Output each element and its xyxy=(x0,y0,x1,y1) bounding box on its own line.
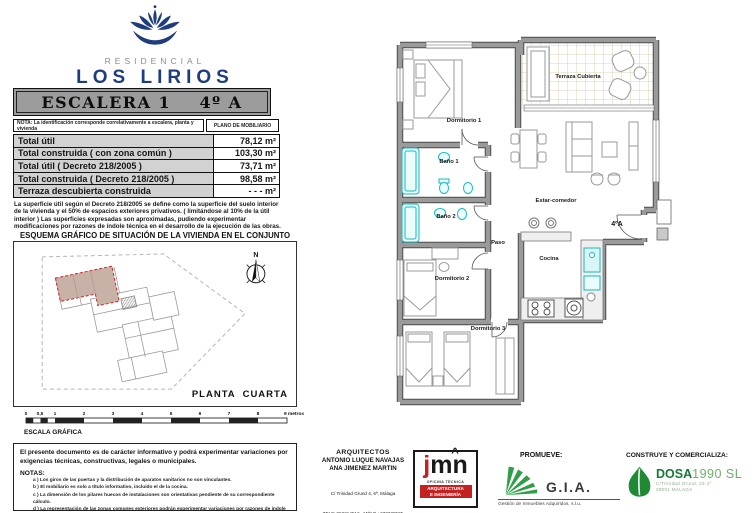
bedroom3-furniture-icon xyxy=(406,332,514,394)
table-row: Total útil ( Decreto 218/2005 ) 73,71 m² xyxy=(14,160,280,173)
room-label-estar: Estar-comedor xyxy=(536,198,578,204)
brochure-page: RESIDENCIAL LOS LIRIOS ESCALERA 1 4º A N… xyxy=(0,0,756,513)
scale-tick: 8 xyxy=(257,411,260,417)
room-label-dormitorio2: Dormitorio 2 xyxy=(435,276,469,282)
building-footprint xyxy=(55,255,190,391)
scale-tick: 1 xyxy=(54,411,57,417)
room-label-terraza: Terraza Cubierta xyxy=(555,74,601,80)
table-row: Total construida ( con zona común ) 103,… xyxy=(14,147,280,160)
area-label: Total construida ( con zona común ) xyxy=(14,147,214,160)
nota-item: b ) El mobiliario es solo a título infor… xyxy=(33,484,290,491)
dosa-tulip-icon xyxy=(626,463,653,499)
area-value: 103,30 m² xyxy=(214,147,280,160)
gia-subtitle: Gestión de Inmuebles Adquiridos, s.l.u. xyxy=(498,502,620,507)
dosa-wordmark: DOSA1990 SL xyxy=(656,468,742,481)
site-plan-box: N PLANTA CUARTA xyxy=(13,241,297,407)
room-label-cocina: Cocina xyxy=(539,256,559,262)
bedroom2-furniture-icon xyxy=(404,248,458,316)
unit-door-label: 4ºA xyxy=(611,221,623,228)
gia-fan-icon xyxy=(498,461,542,497)
table-row: Total útil 78,12 m² xyxy=(14,135,280,148)
scale-tick: 0,5 xyxy=(37,411,44,417)
area-value: 98,58 m² xyxy=(214,172,280,185)
room-label-bano2: Baño 2 xyxy=(436,214,455,220)
area-label: Total útil ( Decreto 218/2005 ) xyxy=(14,160,214,173)
schema-title: ESQUEMA GRÁFICO DE SITUACIÓN DE LA VIVIE… xyxy=(13,231,297,240)
notas-title: NOTAS: xyxy=(20,470,290,477)
plano-mobiliario-label: PLANO DE MOBILIARIO xyxy=(206,119,279,132)
bathroom2-fixtures-icon xyxy=(402,204,467,242)
scale-tick: 7 xyxy=(228,411,231,417)
area-label: Total construida ( Decreto 218/2005 ) xyxy=(14,172,214,185)
jmn-tagline: OFICINA TÉCNICA xyxy=(427,480,465,484)
kitchen-icon xyxy=(521,218,603,320)
architect-name: ANTONIO LUQUE NAVAJAS xyxy=(315,457,411,464)
architects-address: C/ Trinidad Grund 4, 6ª, Málaga xyxy=(315,491,411,498)
jmn-wordmark: jmn ^ xyxy=(423,453,467,478)
scale-tick: 3 xyxy=(112,411,115,417)
promueve-block: PROMUEVE: G.I.A. Gestión de Inmuebles Ad… xyxy=(498,452,620,507)
construye-title: CONSTRUYE Y COMERCIALIZA: xyxy=(626,452,753,459)
architects-title: ARQUITECTOS xyxy=(315,449,411,456)
notes-box: El presente documento es de carácter inf… xyxy=(13,443,297,511)
architect-name: ANA JIMENEZ MARTIN xyxy=(315,465,411,472)
brand-residencial: RESIDENCIAL xyxy=(13,56,297,66)
unit-title: ESCALERA 1 4º A xyxy=(41,93,242,112)
brand-name: LOS LIRIOS xyxy=(13,67,297,89)
area-label: Total útil xyxy=(14,135,214,148)
area-value: 73,71 m² xyxy=(214,160,280,173)
jmn-circumflex: ^ xyxy=(451,446,459,459)
floor-plan: Dormitorio 1 Baño 1 Baño 2 Dormitorio 2 … xyxy=(388,10,754,440)
living-furniture-icon xyxy=(566,122,638,185)
jmn-mn: mn xyxy=(430,451,468,479)
brand-block: RESIDENCIAL LOS LIRIOS xyxy=(13,4,297,89)
areas-table: Total útil 78,12 m² Total construida ( c… xyxy=(13,134,280,198)
architects-contact: C/ Trinidad Grund 4, 6ª, Málaga TELF: 95… xyxy=(315,477,411,513)
bathroom1-fixtures-icon xyxy=(402,148,473,194)
gia-wordmark: G.I.A. xyxy=(546,479,592,495)
floor-name-label: PLANTA CUARTA xyxy=(192,389,288,400)
jmn-logo: jmn ^ OFICINA TÉCNICA ARQUITECTURA E ING… xyxy=(413,450,478,508)
room-label-dormitorio1: Dormitorio 1 xyxy=(447,118,482,124)
table-row: Terraza descubierta construida - - - m² xyxy=(14,185,280,198)
area-value: - - - m² xyxy=(214,185,280,198)
lotus-logo-icon xyxy=(126,4,184,50)
north-label: N xyxy=(253,252,258,259)
architects-block: ARQUITECTOS ANTONIO LUQUE NAVAJAS ANA JI… xyxy=(315,449,411,513)
compass-icon: N xyxy=(247,252,265,283)
site-plan-drawing: N xyxy=(14,242,296,406)
scale-tick: 0 xyxy=(25,411,28,417)
disclaimer-text: El presente documento es de carácter inf… xyxy=(20,449,290,466)
scale-tick: 6 xyxy=(199,411,202,417)
scale-caption: ESCALA GRÁFICA xyxy=(24,429,82,436)
nota-row: NOTA: La identificación corresponde corr… xyxy=(13,119,279,132)
scale-tick: 5 xyxy=(170,411,173,417)
nota-item: a ) Los giros de las puertas y la distri… xyxy=(33,477,290,484)
room-label-bano1: Baño 1 xyxy=(439,159,459,165)
legal-text: La superficie útil según el Decreto 218/… xyxy=(14,201,286,231)
scale-bar: 0 0,5 1 2 3 4 5 6 7 8 9 metros xyxy=(22,410,308,427)
jmn-band: ARQUITECTURA E INGENIERÍA xyxy=(420,485,472,498)
area-label: Terraza descubierta construida xyxy=(14,185,214,198)
scale-tick: 2 xyxy=(83,411,86,417)
dosa-address2: 29001 MALAGA xyxy=(656,487,742,493)
entrance-landing xyxy=(657,200,671,240)
room-label-paso: Paso xyxy=(491,240,505,246)
scale-tick: 4 xyxy=(141,411,144,417)
nota-item: d ) La representación de las zonas comun… xyxy=(33,506,290,513)
area-value: 78,12 m² xyxy=(214,135,280,148)
nota-item: c ) La dimensión de los pilares huecos d… xyxy=(33,492,290,506)
room-label-dormitorio3: Dormitorio 3 xyxy=(471,326,506,332)
table-row: Total construida ( Decreto 218/2005 ) 98… xyxy=(14,172,280,185)
nota-text: NOTA: La identificación corresponde corr… xyxy=(13,119,204,132)
unit-header: ESCALERA 1 4º A xyxy=(13,88,271,116)
promueve-title: PROMUEVE: xyxy=(520,452,620,459)
construye-block: CONSTRUYE Y COMERCIALIZA: DOSA1990 SL C/… xyxy=(626,452,753,499)
scale-tick: 9 metros xyxy=(284,411,304,417)
dining-table-icon xyxy=(511,130,546,168)
